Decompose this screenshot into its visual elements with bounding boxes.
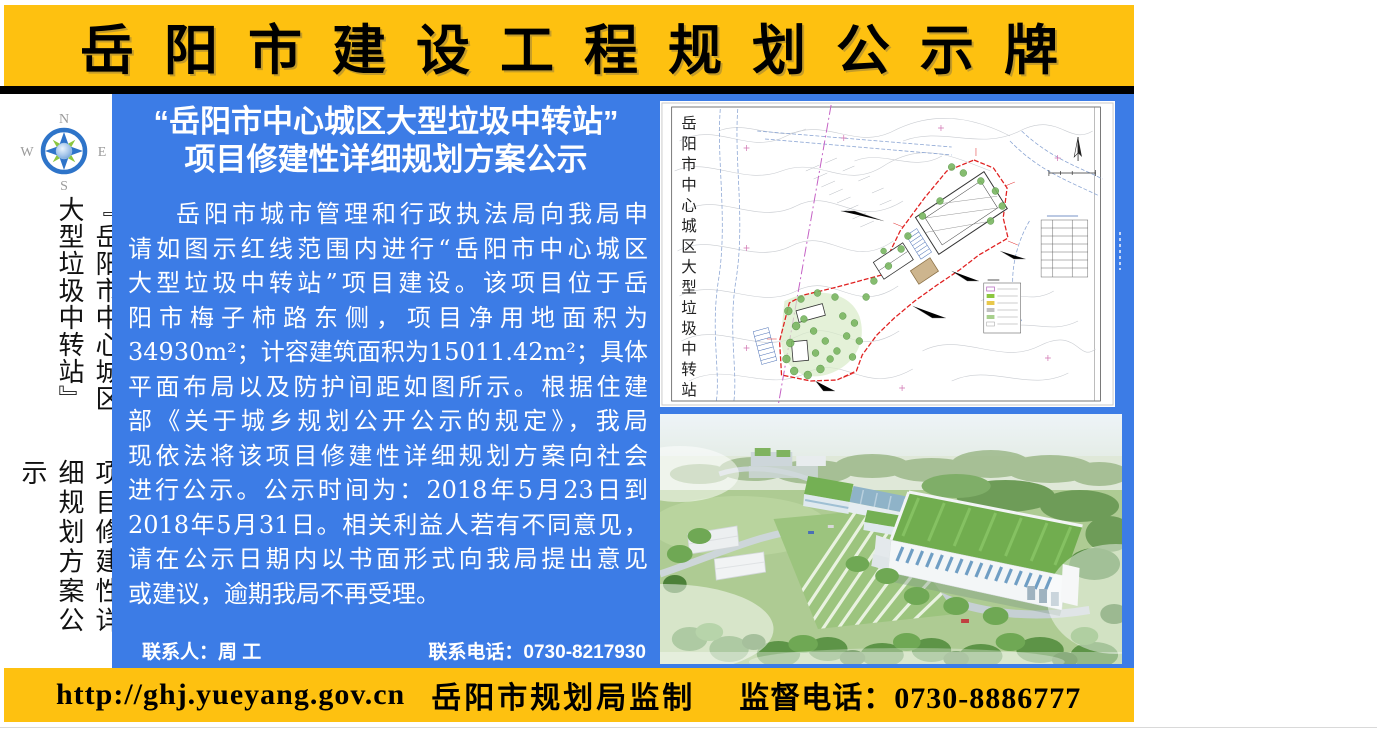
notice-body-line-9: 进行公示。公示时间为：2018年5月23日到 — [128, 473, 648, 508]
notice-title-line2: 项目修建性详细规划方案公示 — [112, 141, 660, 179]
notice-body-line-2: 请如图示红线范围内进行“岳阳市中心城区 — [128, 232, 648, 267]
banner-separator — [0, 86, 1134, 94]
blue-notice-panel: “岳阳市中心城区大型垃圾中转站” 项目修建性详细规划方案公示 岳阳市城市管理和行… — [112, 94, 1134, 668]
photo-bottom-edge — [0, 727, 1377, 728]
sidebar-title-plan: 项目修建性详细规划方案公示 — [10, 459, 125, 656]
notice-body-line-4: 阳市梅子柿路东侧，项目净用地面积为 — [128, 301, 648, 336]
bottom-banner: http://ghj.yueyang.gov.cn 岳阳市规划局监制 监督电话：… — [4, 668, 1134, 722]
main-area: N W E S 『岳阳市中心城区大型垃圾中转站』 项目修建性详细规划方案公示 “… — [0, 94, 1134, 668]
notice-body: 岳阳市城市管理和行政执法局向我局申请如图示红线范围内进行“岳阳市中心城区大型垃圾… — [128, 197, 648, 611]
footer-url: http://ghj.yueyang.gov.cn — [56, 678, 405, 712]
left-sidebar: N W E S 『岳阳市中心城区大型垃圾中转站』 项目修建性详细规划方案公示 — [0, 94, 112, 668]
notice-body-line-3: 大型垃圾中转站”项目建设。该项目位于岳 — [128, 266, 648, 301]
notice-body-line-6: 平面布局以及防护间距如图所示。根据住建 — [128, 370, 648, 405]
indicator-table — [1041, 216, 1088, 277]
notice-title-line1: “岳阳市中心城区大型垃圾中转站” — [112, 103, 660, 141]
sidebar-vertical-title: 『岳阳市中心城区大型垃圾中转站』 项目修建性详细规划方案公示 — [10, 196, 125, 656]
board-title: 岳阳市建设工程规划公示牌 — [50, 6, 1088, 85]
notice-body-line-5: 34930m²；计容建筑面积为15011.42m²；具体 — [128, 335, 648, 370]
contact-person: 联系人：周 工 — [142, 637, 261, 664]
notice-body-line-10: 2018年5月31日。相关利益人若有不同意见， — [128, 508, 648, 543]
sidebar-title-project: 『岳阳市中心城区大型垃圾中转站』 — [10, 196, 125, 417]
notice-body-line-8: 现依法将该项目修建性详细规划方案向社会 — [128, 439, 648, 474]
compass-e-label: E — [98, 145, 107, 160]
notice-body-line-12: 或建议，逾期我局不再受理。 — [128, 577, 648, 612]
notice-body-line-1: 岳阳市城市管理和行政执法局向我局申 — [128, 197, 648, 232]
contact-row: 联系人：周 工 联系电话：0730-8217930 — [112, 637, 660, 664]
footer-supervision-phone: 监督电话：0730-8886777 — [739, 673, 1081, 717]
compass-icon: N W E S — [18, 108, 110, 194]
notice-board-photo: 岳阳市建设工程规划公示牌 N W E S 『岳阳市中 — [0, 0, 1377, 731]
notice-body-line-11: 请在公示日期内以书面形式向我局提出意见 — [128, 542, 648, 577]
compass-w-label: W — [20, 145, 34, 160]
compass-n-label: N — [59, 112, 69, 127]
site-plan-vertical-label: 岳阳市中心城区大型垃圾中转站 — [676, 115, 698, 402]
notice-body-line-7: 部《关于城乡规划公开公示的规定》，我局 — [128, 404, 648, 439]
compass-s-label: S — [60, 179, 68, 194]
site-plan-drawing — [660, 101, 1115, 407]
map-legend — [984, 280, 1021, 333]
notice-title: “岳阳市中心城区大型垃圾中转站” 项目修建性详细规划方案公示 — [112, 103, 660, 179]
aerial-rendering-drawing — [660, 414, 1122, 664]
footer-producer: 岳阳市规划局监制 — [431, 673, 695, 717]
drawing-frame-note — [1119, 232, 1121, 270]
top-banner: 岳阳市建设工程规划公示牌 — [4, 5, 1134, 86]
contact-phone: 联系电话：0730-8217930 — [428, 637, 646, 664]
aerial-rendering-image — [660, 414, 1122, 664]
site-plan-image: 岳阳市中心城区大型垃圾中转站 — [660, 101, 1115, 407]
notice-text-block: “岳阳市中心城区大型垃圾中转站” 项目修建性详细规划方案公示 岳阳市城市管理和行… — [112, 94, 660, 668]
